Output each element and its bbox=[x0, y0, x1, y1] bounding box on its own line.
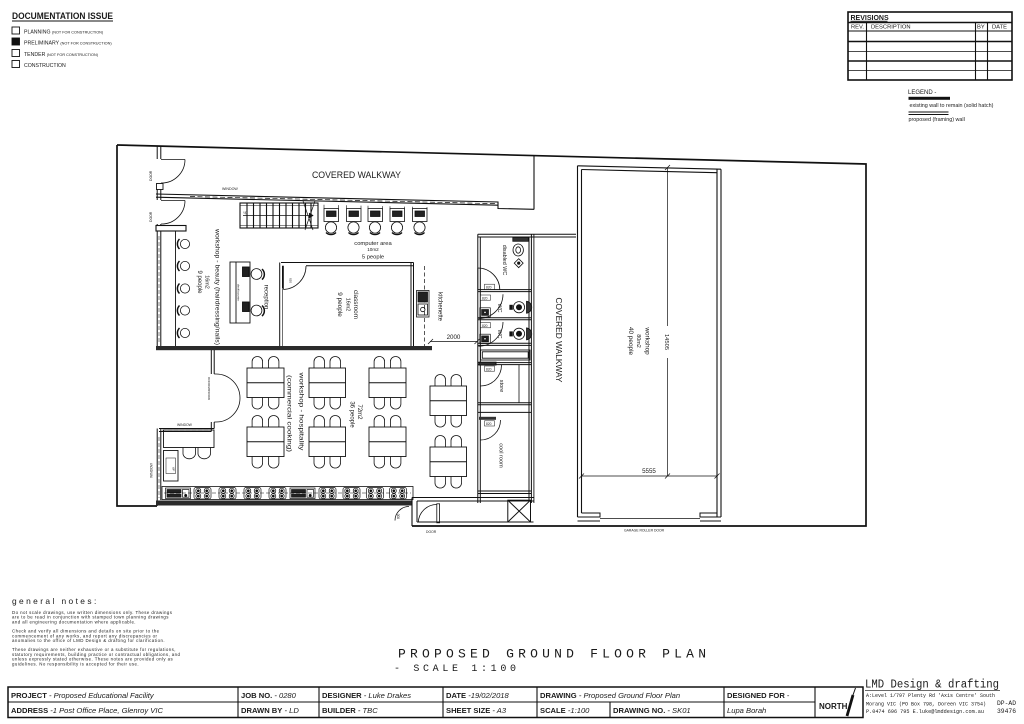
svg-text:COVERED WALKWAY: COVERED WALKWAY bbox=[554, 298, 563, 384]
svg-text:(commercial cooking): (commercial cooking) bbox=[286, 375, 292, 452]
svg-text:SHEET SIZE - A3: SHEET SIZE - A3 bbox=[446, 706, 507, 715]
svg-text:WINDOW: WINDOW bbox=[177, 423, 193, 427]
svg-text:40 people: 40 people bbox=[627, 327, 634, 356]
svg-text:proposed (framing) wall: proposed (framing) wall bbox=[909, 117, 965, 123]
svg-text:SCALE -1:100: SCALE -1:100 bbox=[540, 706, 590, 715]
svg-text:NORTH: NORTH bbox=[819, 702, 848, 711]
svg-text:store: store bbox=[498, 380, 504, 392]
svg-text:P.0474 696 795 E.luke@lmddesi: P.0474 696 795 E.luke@lmddesign.com.au bbox=[866, 708, 984, 715]
svg-text:workshop - beauty (hairdressin: workshop - beauty (hairdressing/nails) bbox=[214, 228, 220, 345]
svg-text:classroom: classroom bbox=[352, 290, 359, 319]
svg-text:disabled WC: disabled WC bbox=[501, 245, 507, 276]
svg-text:9 people: 9 people bbox=[196, 270, 202, 294]
svg-text:Lupa Borah: Lupa Borah bbox=[727, 706, 766, 715]
svg-text:DOOR/WINDOW: DOOR/WINDOW bbox=[207, 377, 211, 400]
svg-text:and all engineering documentat: and all engineering documentation where … bbox=[12, 619, 136, 624]
svg-text:PROJECT - Proposed Educational: PROJECT - Proposed Educational Facility bbox=[11, 691, 155, 700]
svg-text:existing wall to remain (solid: existing wall to remain (solid hatch) bbox=[910, 103, 994, 109]
svg-text:general notes:: general notes: bbox=[12, 596, 99, 606]
svg-text:DOOR: DOOR bbox=[426, 530, 437, 534]
svg-text:9 people: 9 people bbox=[336, 292, 343, 317]
svg-text:BUILDER - TBC: BUILDER - TBC bbox=[322, 706, 378, 715]
svg-text:guidelines. No responsibility: guidelines. No responsibility is accepte… bbox=[12, 661, 139, 666]
svg-text:820: 820 bbox=[482, 324, 488, 328]
svg-text:80m2: 80m2 bbox=[635, 334, 641, 348]
svg-text:DESIGNER - Luke Drakes: DESIGNER - Luke Drakes bbox=[322, 691, 411, 700]
svg-text:36 people: 36 people bbox=[349, 401, 355, 428]
svg-text:72m2: 72m2 bbox=[356, 404, 362, 420]
svg-text:ADDRESS -1 Post Office Place,: ADDRESS -1 Post Office Place, Glenroy VI… bbox=[11, 706, 163, 715]
svg-text:39476: 39476 bbox=[997, 708, 1016, 715]
svg-text:DATE: DATE bbox=[992, 25, 1007, 31]
svg-text:16m2: 16m2 bbox=[204, 275, 210, 289]
svg-text:LMD Design & drafting: LMD Design & drafting bbox=[865, 679, 999, 692]
svg-text:REV.: REV. bbox=[851, 25, 864, 31]
svg-text:5 people: 5 people bbox=[362, 255, 384, 261]
svg-text:2000: 2000 bbox=[447, 334, 461, 341]
svg-text:LEGEND -: LEGEND - bbox=[908, 90, 936, 96]
svg-text:16m2: 16m2 bbox=[345, 298, 351, 312]
svg-text:WC: WC bbox=[496, 304, 502, 313]
svg-text:820: 820 bbox=[289, 278, 293, 283]
svg-text:DP-AD: DP-AD bbox=[997, 700, 1016, 707]
svg-text:GARAGE ROLLER DOOR: GARAGE ROLLER DOOR bbox=[624, 529, 665, 533]
svg-text:DOCUMENTATION ISSUE: DOCUMENTATION ISSUE bbox=[12, 11, 113, 21]
svg-text:800: 800 bbox=[397, 513, 401, 519]
svg-text:820: 820 bbox=[486, 367, 492, 371]
svg-text:CONSTRUCTION: CONSTRUCTION bbox=[24, 63, 66, 69]
svg-text:820: 820 bbox=[486, 422, 492, 426]
svg-text:WINDOW: WINDOW bbox=[150, 462, 154, 478]
svg-text:14505: 14505 bbox=[663, 334, 669, 350]
svg-text:JOB NO. - 0280: JOB NO. - 0280 bbox=[241, 691, 297, 700]
svg-text:BY: BY bbox=[977, 25, 985, 31]
svg-text:kitchenette: kitchenette bbox=[437, 292, 443, 322]
svg-text:desk/counter: desk/counter bbox=[237, 284, 241, 301]
svg-text:WF: WF bbox=[172, 467, 176, 472]
svg-text:820: 820 bbox=[486, 286, 492, 290]
svg-text:WC: WC bbox=[496, 330, 502, 339]
svg-text:DOOR: DOOR bbox=[149, 170, 153, 181]
svg-text:Morang VIC (PO Box 798, Doreen: Morang VIC (PO Box 798, Doreen VIC 3754) bbox=[866, 701, 986, 708]
svg-text:reception: reception bbox=[263, 285, 269, 310]
svg-text:anomalies to the office of LMD: anomalies to the office of LMD Design & … bbox=[12, 638, 165, 643]
svg-text:DOOR: DOOR bbox=[149, 211, 153, 222]
svg-text:workshop - hospitality: workshop - hospitality bbox=[298, 371, 304, 450]
svg-text:WINDOW: WINDOW bbox=[222, 187, 238, 191]
svg-text:DATE -19/02/2018: DATE -19/02/2018 bbox=[446, 691, 510, 700]
svg-text:5555: 5555 bbox=[642, 468, 656, 475]
svg-text:DESCRIPTION: DESCRIPTION bbox=[871, 25, 911, 31]
svg-text:A:Level 1/797 Plenty Rd 'Axis: A:Level 1/797 Plenty Rd 'Axis Centre' So… bbox=[866, 692, 995, 699]
svg-text:COVERED WALKWAY: COVERED WALKWAY bbox=[312, 170, 401, 180]
svg-text:cool room: cool room bbox=[498, 443, 504, 468]
svg-text:up: up bbox=[244, 211, 248, 215]
svg-text:DRAWING NO. - SK01: DRAWING NO. - SK01 bbox=[613, 706, 691, 715]
svg-text:820: 820 bbox=[482, 296, 488, 300]
svg-text:DRAWN BY - LD: DRAWN BY - LD bbox=[241, 706, 299, 715]
svg-text:DESIGNED FOR -: DESIGNED FOR - bbox=[727, 691, 790, 700]
svg-text:10m2: 10m2 bbox=[367, 247, 379, 252]
svg-text:DRAWING - Proposed Ground Flo: DRAWING - Proposed Ground Floor Plan bbox=[540, 691, 680, 700]
svg-text:workshop: workshop bbox=[644, 326, 651, 355]
